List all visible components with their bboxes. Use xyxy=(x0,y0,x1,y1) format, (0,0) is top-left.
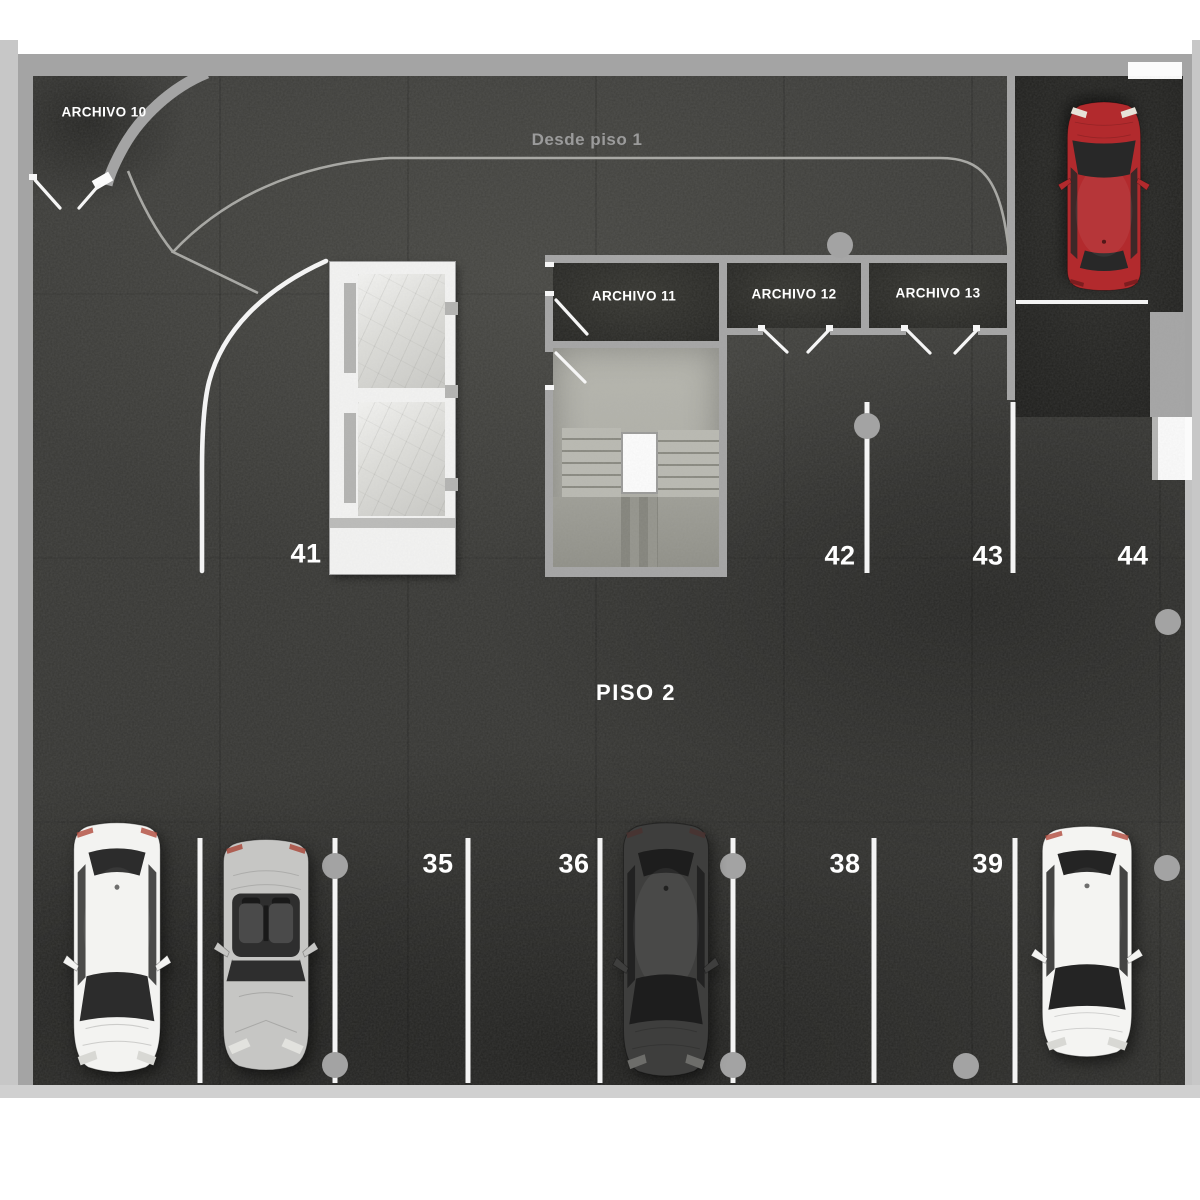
archivo-12-label: ARCHIVO 12 xyxy=(751,287,836,302)
spot-number-44: 44 xyxy=(1117,541,1148,572)
car-silver-convertible xyxy=(208,836,324,1074)
plan-edge-left xyxy=(0,40,18,1098)
car-white-hatchback xyxy=(1026,822,1148,1064)
spot-number-42: 42 xyxy=(824,541,855,572)
plan-edge-right xyxy=(1192,40,1200,1098)
archivo-13-label: ARCHIVO 13 xyxy=(895,286,980,301)
spot-number-36: 36 xyxy=(558,849,589,880)
spot-number-39: 39 xyxy=(972,849,1003,880)
cars-layer xyxy=(0,0,1200,1200)
car-white-sedan xyxy=(58,818,176,1080)
archivo-11-label: ARCHIVO 11 xyxy=(592,289,676,304)
plan-edge-bottom xyxy=(0,1085,1200,1098)
parking-floor-plan: ARCHIVO 10 ARCHIVO 11 ARCHIVO 12 ARCHIVO… xyxy=(0,0,1200,1200)
plan-canvas: ARCHIVO 10 ARCHIVO 11 ARCHIVO 12 ARCHIVO… xyxy=(0,0,1200,1200)
spot-number-43: 43 xyxy=(972,541,1003,572)
ramp-label: Desde piso 1 xyxy=(532,130,643,150)
spot-number-35: 35 xyxy=(422,849,453,880)
floor-label: PISO 2 xyxy=(596,680,676,706)
archivo-10-label: ARCHIVO 10 xyxy=(61,105,146,120)
car-red-sedan xyxy=(1054,96,1154,294)
spot-number-38: 38 xyxy=(829,849,860,880)
car-black-sedan xyxy=(608,818,724,1084)
spot-number-41: 41 xyxy=(290,539,321,570)
